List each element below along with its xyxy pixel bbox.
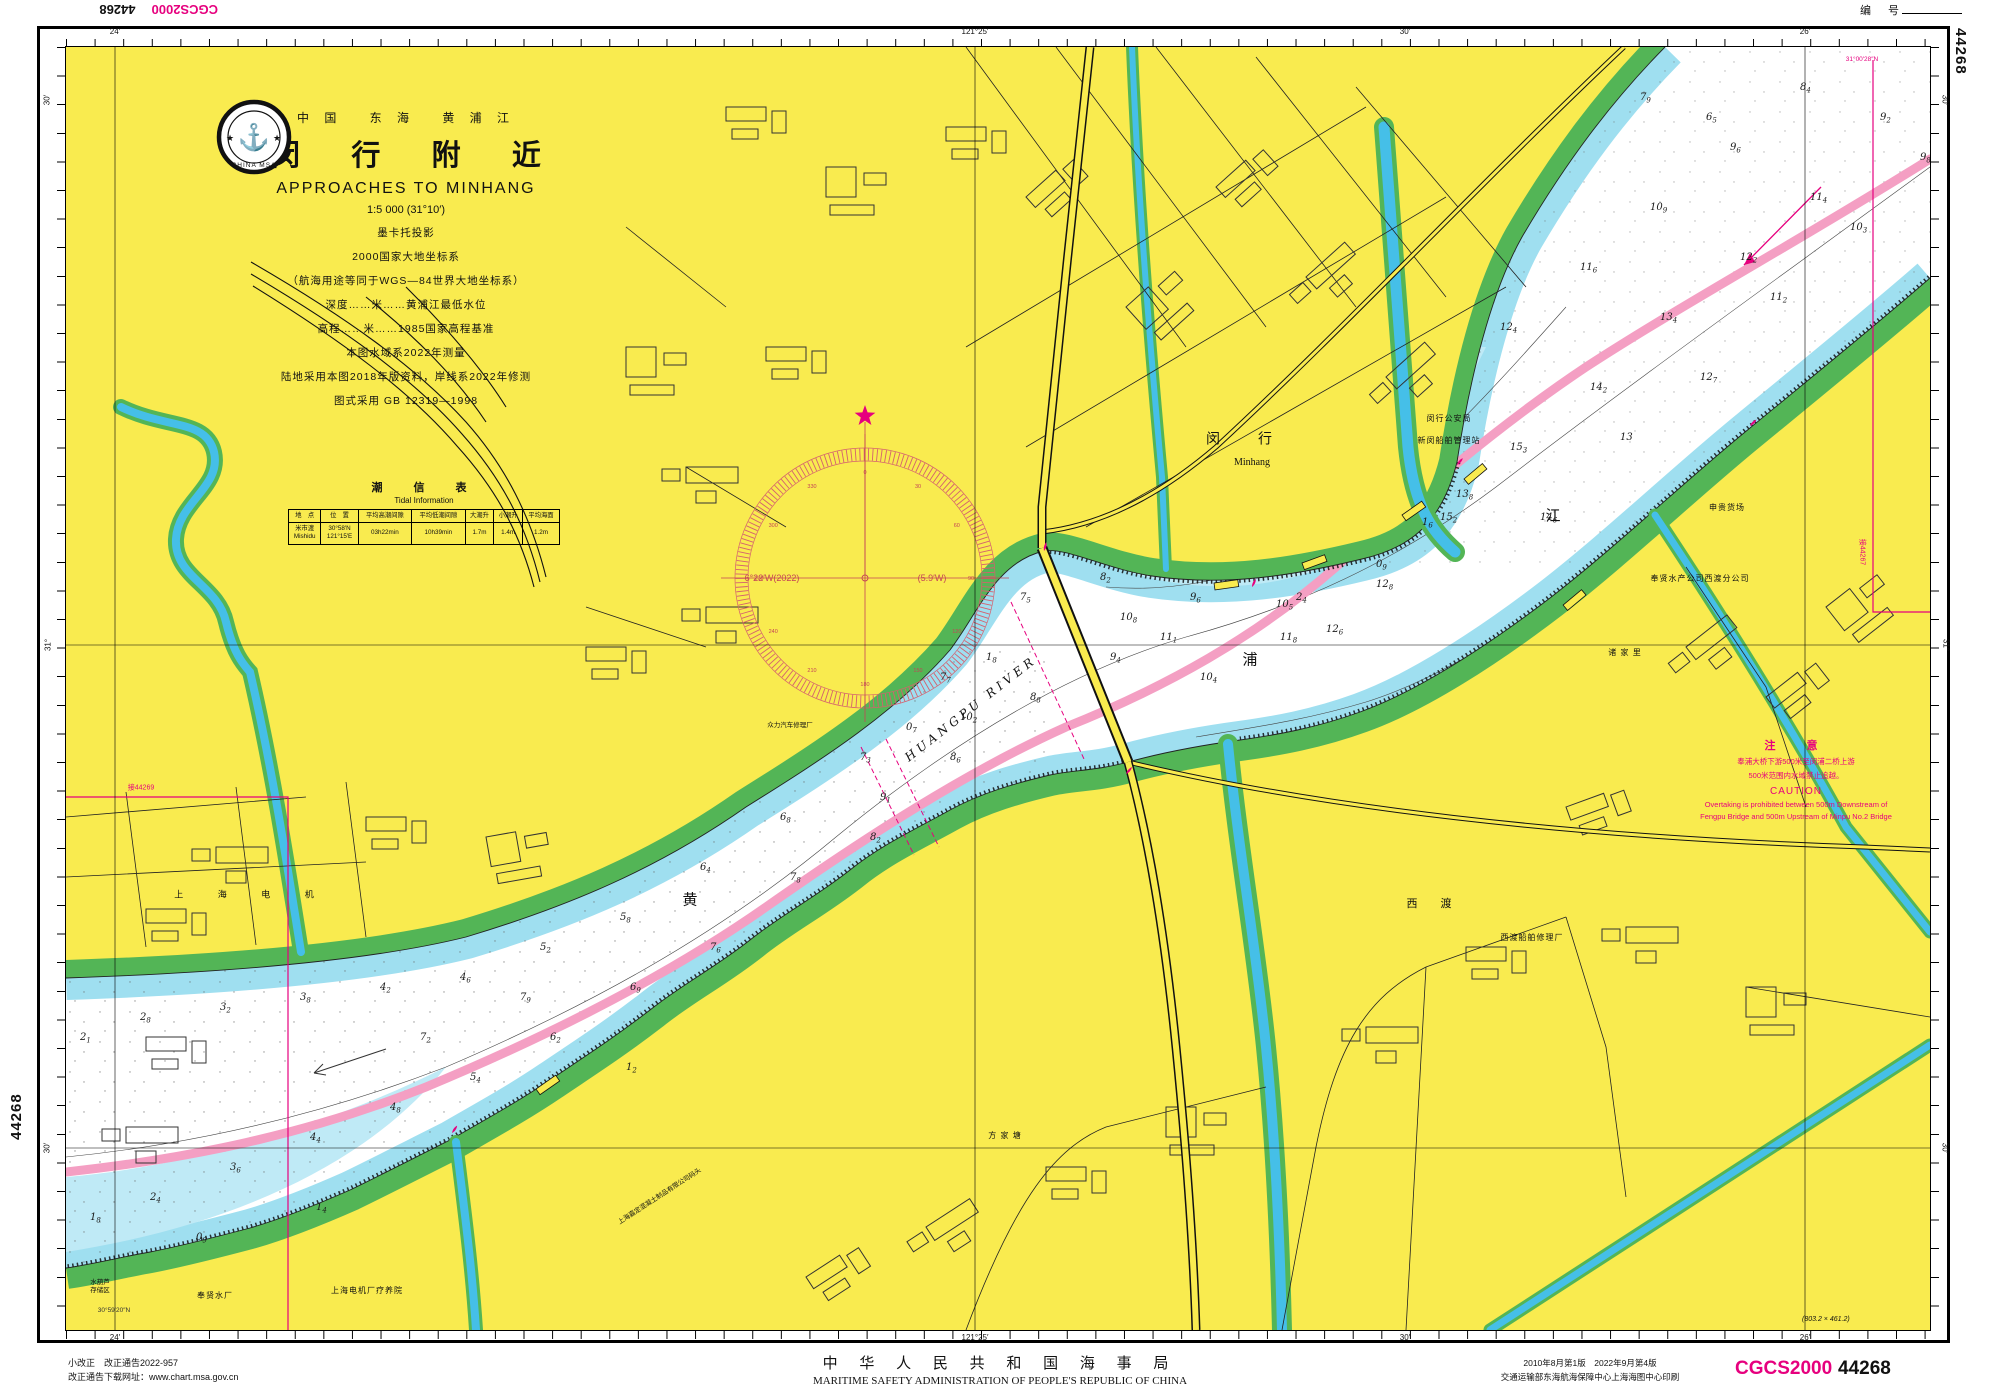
printer-line: 交通运输部东海航海保障中心上海海图中心印刷 <box>1450 1370 1730 1384</box>
graticule-label: 31° <box>44 639 53 651</box>
graticule-label: 30′ <box>1941 1143 1950 1153</box>
tide-col-header: 小潮升 <box>494 510 523 523</box>
tidal-information-table: 潮 信 表 Tidal Information 地 点位 置平均高潮间隙平均低潮… <box>288 479 560 545</box>
title-note-7: 图式采用 GB 12319—1998 <box>216 393 596 408</box>
title-note-2: （航海用途等同于WGS—84世界大地坐标系） <box>216 273 596 288</box>
tide-col-header: 平均低潮间隙 <box>412 510 465 523</box>
tide-cell: 1.7m <box>465 523 494 544</box>
graticule-label: 24′ <box>110 27 120 36</box>
tide-col-header: 大潮升 <box>465 510 494 523</box>
title-block: ⚓ ★ ★ CHINA MSA 中 国 东 海 黄 浦 江 闵 行 附 近 AP… <box>216 99 596 408</box>
graticule-label: 31° <box>1942 639 1951 651</box>
graticule-label: 121°25′ <box>962 27 989 36</box>
title-note-4: 高程……米……1985国家高程基准 <box>216 321 596 336</box>
title-note-0: 墨卡托投影 <box>216 225 596 240</box>
title-note-1: 2000国家大地坐标系 <box>216 249 596 264</box>
graduation-right <box>1931 47 1939 1330</box>
mag-variation-left: 6°22′W(2022) <box>745 573 800 583</box>
rose-degree: 120 <box>952 629 961 635</box>
caution-en-2: Fengpu Bridge and 500m Upstream of Minpu… <box>1666 812 1926 821</box>
tide-cell: 1.4m <box>494 523 523 544</box>
rose-degree: 240 <box>769 629 778 635</box>
graticule-label: 30′ <box>1400 27 1410 36</box>
sheet-dimensions: (803.2 × 461.2) <box>1802 1316 1850 1323</box>
caution-cn-2: 500米范围内水域禁止追越。 <box>1666 770 1926 781</box>
flipped-chart-number: 44268 <box>99 2 135 17</box>
title-note-3: 深度……米……黄浦江最低水位 <box>216 297 596 312</box>
svg-text:★: ★ <box>226 133 234 143</box>
graduation-bottom <box>66 1331 1930 1339</box>
flipped-cgcs-label: CGCS2000 <box>152 2 218 17</box>
tide-cell: 10h39min <box>412 523 465 544</box>
graticule-label: 121°25′ <box>962 1333 989 1342</box>
tide-title-cn: 潮 信 表 <box>288 479 560 495</box>
china-msa-logo-icon: ⚓ ★ ★ CHINA MSA <box>216 99 292 175</box>
rose-degree: 0 <box>863 470 866 476</box>
sounding: 13 <box>1620 432 1633 443</box>
rose-degree: 150 <box>913 668 922 674</box>
tide-col-header: 平均高潮间隙 <box>358 510 411 523</box>
edition-line: 2010年8月第1版 2022年9月第4版 <box>1450 1356 1730 1370</box>
rose-degree: 300 <box>769 523 778 529</box>
caution-cn-1: 奉浦大桥下游500米至闵浦二桥上游 <box>1666 756 1926 767</box>
tide-col-header: 地 点 <box>289 510 321 523</box>
title-note-6: 陆地采用本图2018年版资料，岸线系2022年修测 <box>216 369 596 384</box>
svg-text:⚓: ⚓ <box>238 122 270 152</box>
chart-number: 44268 <box>1838 1358 1891 1380</box>
svg-text:★: ★ <box>273 133 281 143</box>
tide-col-header: 位 置 <box>321 510 358 523</box>
graticule-label: 30′ <box>1941 95 1950 105</box>
title-note-5: 本图水域系2022年测量 <box>216 345 596 360</box>
tide-col-header: 平均海面 <box>523 510 560 523</box>
rose-degree: 180 <box>860 682 869 688</box>
graticule-label: 30′ <box>43 1143 52 1153</box>
left-edge-chart-number: 44268 <box>8 1093 25 1140</box>
tide-table: 地 点位 置平均高潮间隙平均低潮间隙大潮升小潮升平均海面 米市渡 Mishidu… <box>288 509 560 545</box>
flipped-chart-code: CGCS200044268 <box>28 2 218 17</box>
tide-cell: 03h22min <box>358 523 411 544</box>
nautical-chart-page: CGCS200044268 编 号 44268 44268 <box>0 0 2000 1394</box>
serial-label: 编 号 <box>1860 5 1902 17</box>
graticule-label: 26′ <box>1800 27 1810 36</box>
graduation-top <box>66 39 1930 47</box>
tide-cell: 米市渡 Mishidu <box>289 523 321 544</box>
rose-degree: 90 <box>968 576 974 582</box>
caution-title-cn: 注 意 <box>1666 737 1926 753</box>
rose-degree: 210 <box>807 668 816 674</box>
chart-scale: 1:5 000 (31°10′) <box>216 204 596 216</box>
graticule-label: 24′ <box>110 1333 120 1342</box>
caution-en-1: Overtaking is prohibited between 500m Do… <box>1666 800 1926 809</box>
graticule-label: 30′ <box>1400 1333 1410 1342</box>
chart-canvas: 0306090120150180210240270300330 92841149… <box>66 47 1930 1330</box>
right-edge-chart-number: 44268 <box>1952 28 1969 75</box>
tide-title-en: Tidal Information <box>288 496 560 505</box>
caution-title-en: CAUTION <box>1666 786 1926 797</box>
mag-variation-right: (5.9′W) <box>918 573 947 583</box>
graduation-left <box>57 47 65 1330</box>
tide-cell: 30°58′N 121°15′E <box>321 523 358 544</box>
serial-blank-line <box>1902 2 1962 14</box>
caution-note: 注 意 奉浦大桥下游500米至闵浦二桥上游 500米范围内水域禁止追越。 CAU… <box>1666 737 1926 821</box>
datum-badge: CGCS2000 <box>1735 1358 1832 1380</box>
svg-text:CHINA MSA: CHINA MSA <box>232 162 277 169</box>
rose-degree: 30 <box>915 484 921 490</box>
graticule-label: 30′ <box>43 95 52 105</box>
edition-notes: 2010年8月第1版 2022年9月第4版 交通运输部东海航海保障中心上海海图中… <box>1450 1356 1730 1385</box>
rose-degree: 60 <box>954 523 960 529</box>
serial-number-field: 编 号 <box>1860 2 1962 18</box>
tide-cell: 1.2m <box>523 523 560 544</box>
graticule-label: 26′ <box>1800 1333 1810 1342</box>
chart-title-en: APPROACHES TO MINHANG <box>216 180 596 198</box>
rose-degree: 330 <box>807 484 816 490</box>
